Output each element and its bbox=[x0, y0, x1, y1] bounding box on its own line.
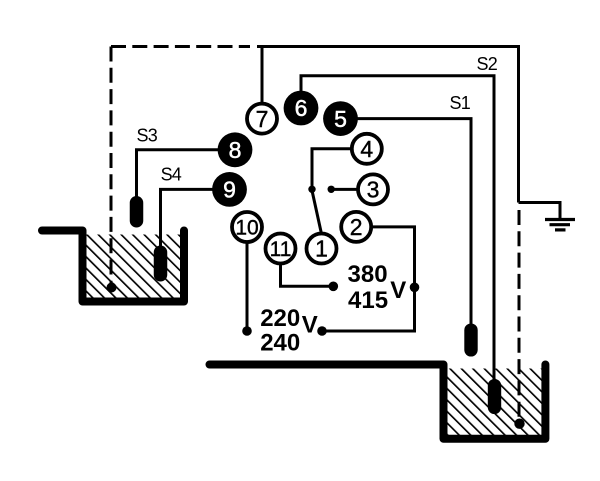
svg-text:9: 9 bbox=[223, 177, 236, 203]
svg-text:3: 3 bbox=[367, 177, 380, 203]
svg-text:11: 11 bbox=[270, 238, 292, 261]
svg-text:240: 240 bbox=[260, 330, 300, 357]
svg-text:415: 415 bbox=[348, 287, 388, 314]
svg-text:6: 6 bbox=[295, 95, 308, 121]
svg-text:220: 220 bbox=[260, 305, 300, 332]
svg-text:10: 10 bbox=[235, 217, 258, 240]
svg-text:2: 2 bbox=[350, 214, 363, 240]
svg-text:7: 7 bbox=[256, 106, 269, 132]
svg-text:S2: S2 bbox=[477, 54, 498, 74]
svg-text:5: 5 bbox=[334, 106, 347, 132]
svg-text:8: 8 bbox=[229, 137, 242, 163]
svg-text:1: 1 bbox=[315, 236, 328, 262]
svg-text:S3: S3 bbox=[137, 126, 158, 146]
svg-text:380: 380 bbox=[348, 261, 388, 288]
svg-text:S1: S1 bbox=[450, 93, 471, 113]
svg-text:4: 4 bbox=[360, 136, 373, 162]
svg-text:V: V bbox=[302, 312, 318, 339]
svg-text:V: V bbox=[390, 277, 406, 304]
svg-text:S4: S4 bbox=[161, 164, 182, 184]
